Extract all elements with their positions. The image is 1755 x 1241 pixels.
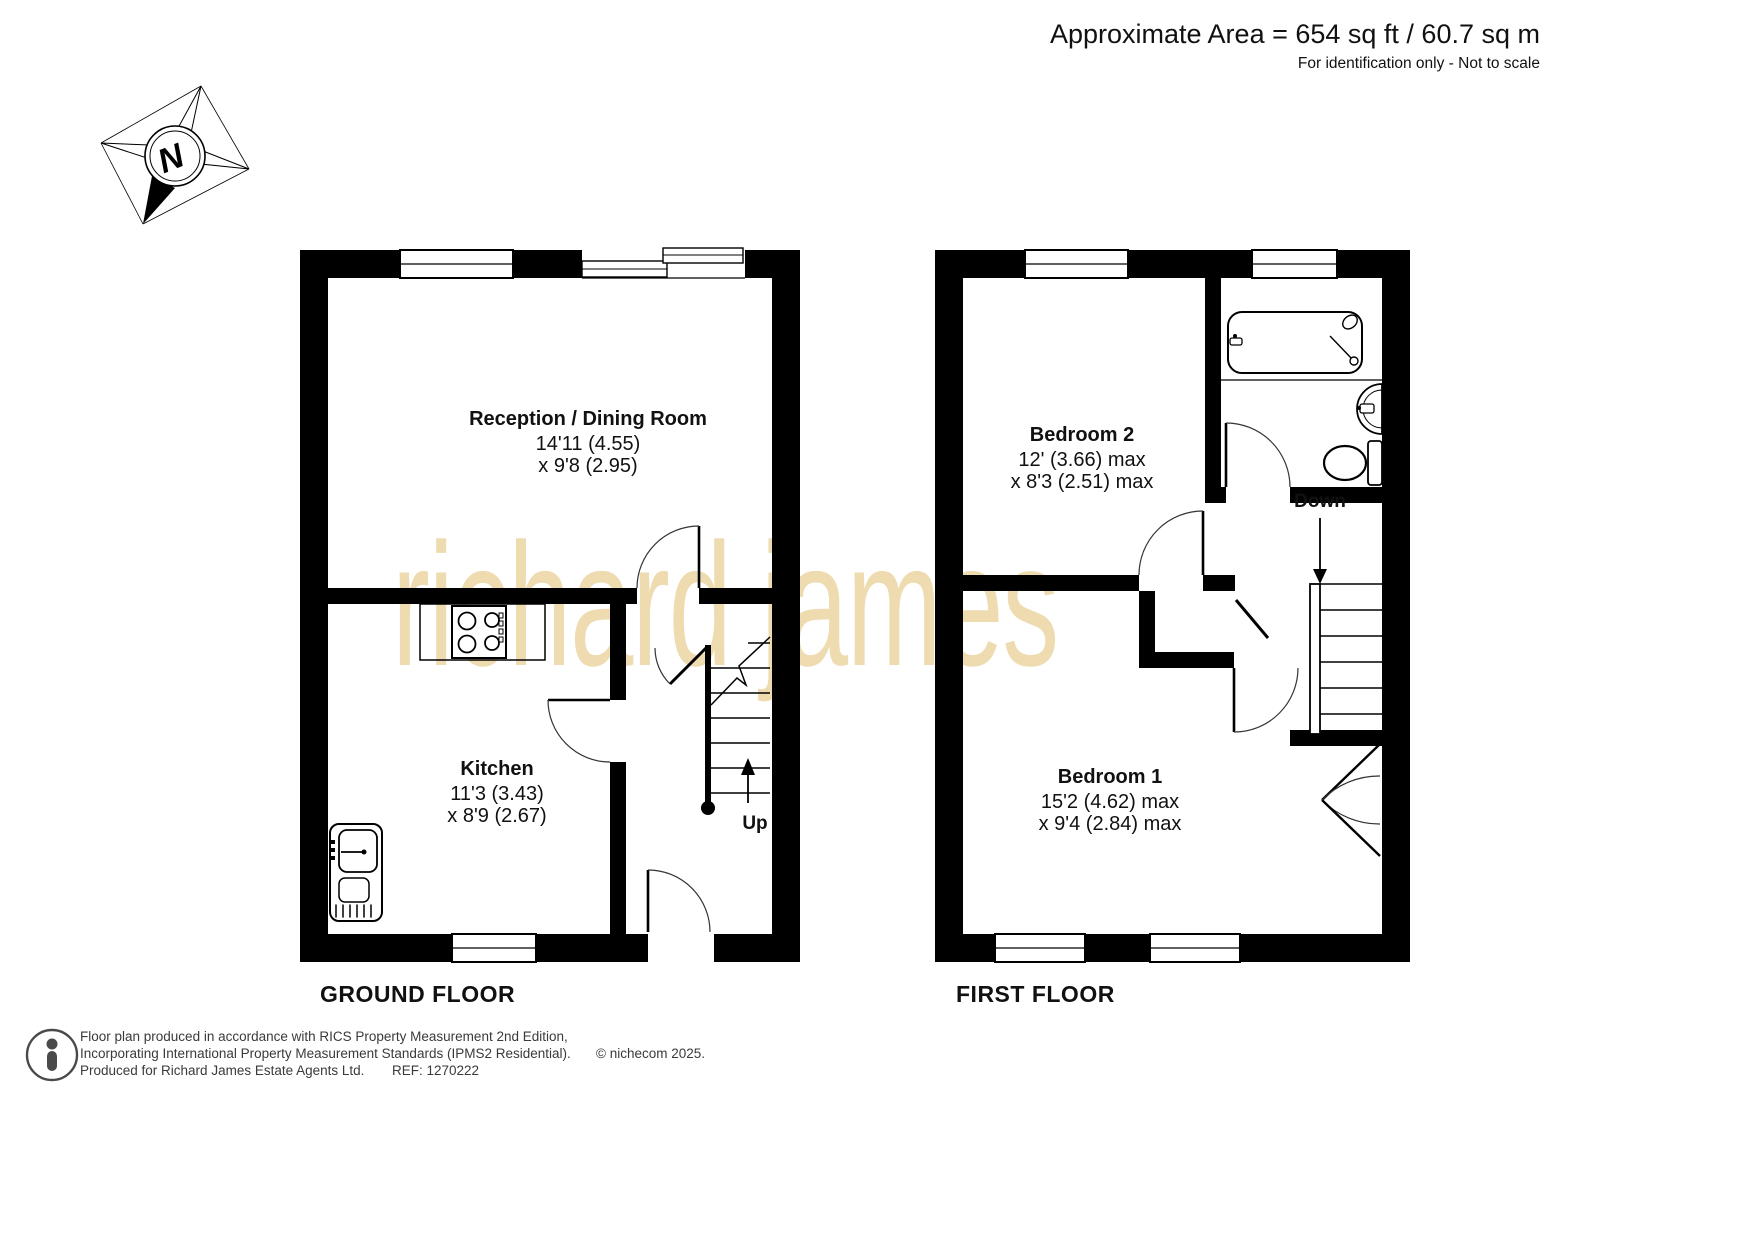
room-dim-reception-1: 14'11 (4.55) xyxy=(536,433,641,455)
room-label-reception: Reception / Dining Room xyxy=(469,408,707,430)
room-dim-kitchen-2: x 8'9 (2.67) xyxy=(447,805,546,827)
stairs-down-label: Down xyxy=(1294,492,1346,513)
ground-floor-title: GROUND FLOOR xyxy=(320,982,515,1007)
footer-copyright: © nichecom 2025. xyxy=(596,1047,705,1062)
room-label-bedroom1: Bedroom 1 xyxy=(1058,766,1162,788)
hob-icon xyxy=(452,606,506,658)
floorplan-page: richard james N xyxy=(0,0,1755,1241)
airing-cupboard-door xyxy=(1236,600,1268,638)
room-dim-kitchen-1: 11'3 (3.43) xyxy=(450,783,544,805)
door xyxy=(548,526,710,932)
bathtub-icon xyxy=(1221,312,1382,380)
down-arrow-icon xyxy=(1313,518,1327,584)
footer-line-1: Floor plan produced in accordance with R… xyxy=(80,1030,568,1045)
toilet-icon xyxy=(1324,441,1382,485)
up-arrow-icon xyxy=(741,758,755,803)
identification-note: For identification only - Not to scale xyxy=(1298,55,1540,72)
room-label-kitchen: Kitchen xyxy=(460,758,533,780)
staircase-down xyxy=(1310,518,1382,734)
nichecom-person-logo-icon xyxy=(27,1030,77,1080)
approximate-area-label: Approximate Area = 654 sq ft / 60.7 sq m xyxy=(1050,20,1540,50)
first-floor-title: FIRST FLOOR xyxy=(956,982,1115,1007)
staircase-up xyxy=(701,637,770,815)
stairs-up-label: Up xyxy=(742,814,767,835)
room-dim-bedroom2-2: x 8'3 (2.51) max xyxy=(1011,471,1154,493)
wash-basin-icon xyxy=(1357,384,1382,434)
kitchen-sink-icon xyxy=(330,824,382,921)
room-dim-bedroom2-1: 12' (3.66) max xyxy=(1018,449,1145,471)
room-dim-reception-2: x 9'8 (2.95) xyxy=(538,455,637,477)
wardrobe-doors xyxy=(1322,744,1380,856)
first-floor-plan xyxy=(935,250,1410,962)
compass-rose-icon: N xyxy=(101,86,249,224)
ground-floor-plan xyxy=(300,248,800,962)
footer-line-2: Incorporating International Property Mea… xyxy=(80,1047,571,1062)
room-dim-bedroom1-1: 15'2 (4.62) max xyxy=(1041,791,1179,813)
room-dim-bedroom1-2: x 9'4 (2.84) max xyxy=(1039,813,1182,835)
footer-line-3: Produced for Richard James Estate Agents… xyxy=(80,1064,364,1079)
footer-ref: REF: 1270222 xyxy=(392,1064,479,1079)
room-label-bedroom2: Bedroom 2 xyxy=(1030,424,1134,446)
